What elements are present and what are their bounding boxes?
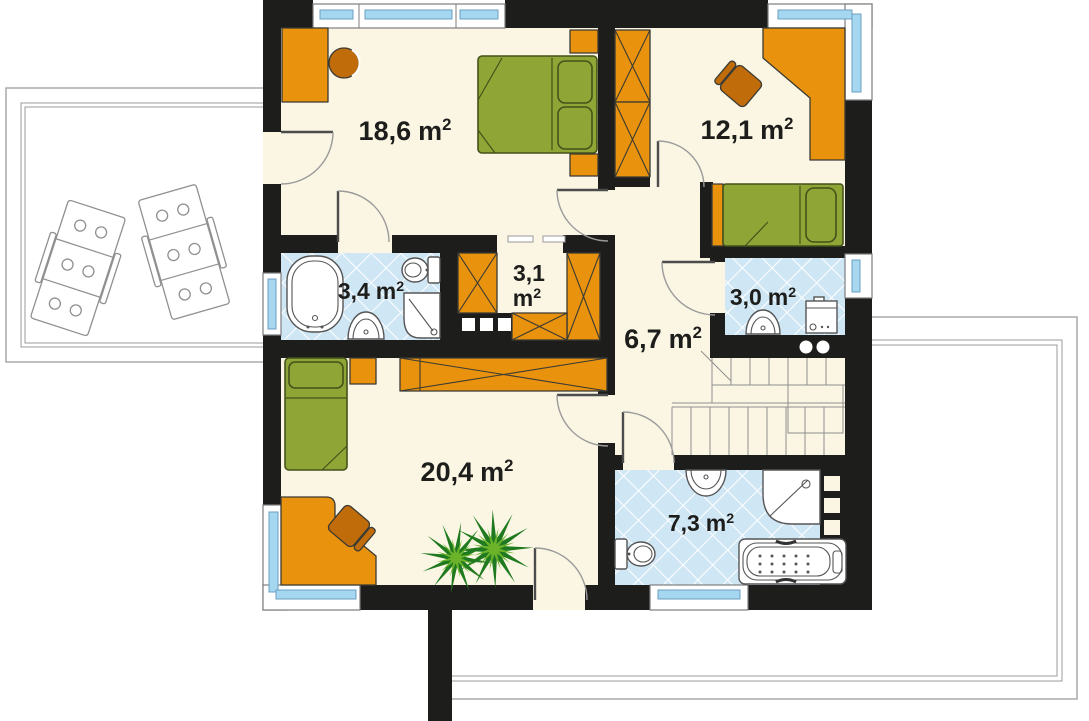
room-area-wardrobe-value: 3,1 [513,260,545,286]
nightstand [570,30,598,53]
floor-plan-page: 18,6m2 12,1m2 3,4m2 3,1 m2 3,0m2 6,7m2 2… [0,0,1089,721]
shower [404,293,440,338]
threshold-mark [508,236,533,242]
single-bed [285,358,347,470]
room-area-bedroom-large: 18,6m2 [359,115,452,146]
pillow [289,362,343,388]
pillow [558,61,592,103]
window-top-left [313,4,505,28]
room-area-bedroom-right: 12,1m2 [701,114,794,145]
pillow [558,107,592,149]
corner-shower [763,470,820,524]
headboard [712,184,723,246]
desk [282,28,328,102]
wardrobe-column [615,30,650,177]
threshold-mark [543,236,565,242]
washing-machine [806,297,837,333]
window-bathroom-ensuite [263,273,281,335]
pillow [806,188,836,242]
window-bathroom-main [650,585,748,610]
window-bathroom-small [845,254,872,298]
nightstand [570,154,598,176]
bathtub [287,256,343,332]
single-bed [712,184,843,246]
toilet [615,539,655,569]
desk-chair [329,48,360,78]
room-area-bedroom-bottom: 20,4m2 [421,456,514,487]
wardrobe [400,358,607,391]
whirlpool-bathtub [739,539,846,584]
floor-plan: 18,6m2 12,1m2 3,4m2 3,1 m2 3,0m2 6,7m2 2… [0,0,1089,721]
nightstand [350,358,376,384]
toilet [402,257,440,283]
double-bed [478,56,597,153]
